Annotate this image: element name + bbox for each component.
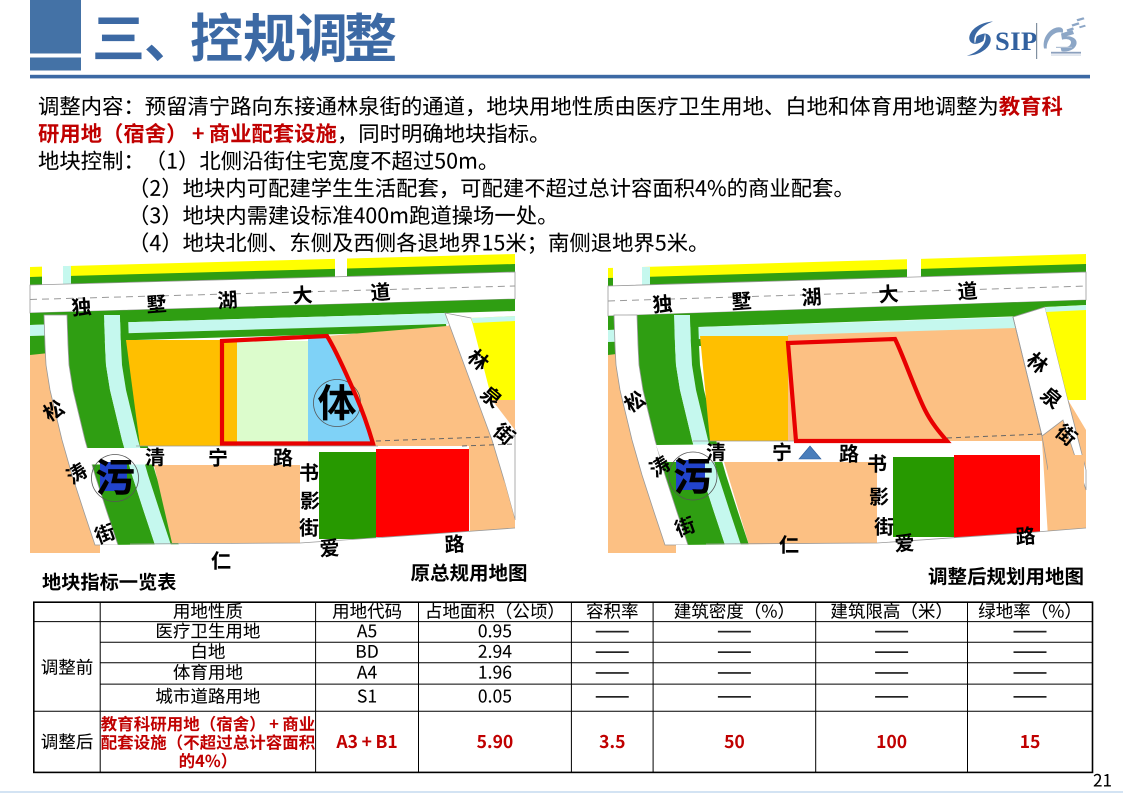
svg-text:SIP: SIP <box>995 26 1038 56</box>
